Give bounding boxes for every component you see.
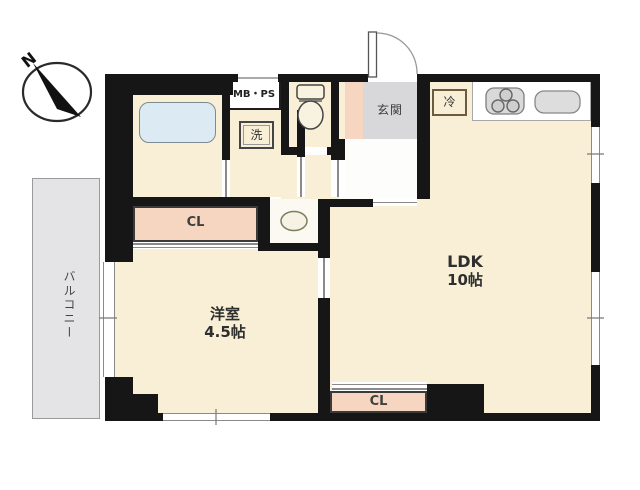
wall xyxy=(258,243,318,251)
ldk-label: LDK 10帖 xyxy=(410,253,520,290)
fridge-label: 冷 xyxy=(432,95,467,109)
wall xyxy=(318,199,330,258)
wall xyxy=(318,298,330,413)
washer-label: 洗 xyxy=(239,128,274,142)
room-vanity-alcove xyxy=(270,199,318,243)
bathtub-icon xyxy=(139,102,216,143)
entry-door-icon xyxy=(369,32,418,77)
window-balcony xyxy=(103,262,115,377)
wall xyxy=(427,384,484,417)
kitchen-counter xyxy=(472,78,591,121)
window-south xyxy=(163,413,270,421)
wall xyxy=(591,74,600,127)
window-east-lower xyxy=(591,272,600,365)
entrance-hall xyxy=(339,139,417,199)
meter-box-label: MB・PS xyxy=(227,89,281,101)
window-east-upper xyxy=(591,127,600,183)
ldk-opening xyxy=(373,199,417,206)
entrance-step xyxy=(345,82,363,139)
ldk-name: LDK xyxy=(410,253,520,272)
ldk-size: 10帖 xyxy=(410,272,520,290)
closet-bottom-label: CL xyxy=(330,394,427,409)
wall xyxy=(105,413,163,421)
western-room-door xyxy=(318,258,330,298)
room-toilet xyxy=(289,82,331,147)
wall xyxy=(297,110,305,157)
wall xyxy=(417,74,430,199)
wall xyxy=(222,82,230,160)
washroom-door xyxy=(297,157,305,197)
closet-bottom-door xyxy=(332,382,427,391)
western-name: 洋室 xyxy=(170,306,280,324)
compass-icon: N xyxy=(18,48,91,121)
wall xyxy=(591,365,600,421)
bath-door xyxy=(222,160,230,197)
wall xyxy=(338,139,345,161)
wall xyxy=(278,74,368,82)
entrance-label: 玄関 xyxy=(363,103,417,117)
western-room-label: 洋室 4.5帖 xyxy=(170,306,280,341)
hall-door xyxy=(331,160,345,197)
balcony-label: バルコニー xyxy=(56,250,76,360)
north-label: N xyxy=(18,48,40,71)
wall xyxy=(281,82,289,149)
wall xyxy=(258,197,270,245)
floorplan-canvas: バルコニー CL CL 冷 洗 MB・PS xyxy=(0,0,640,490)
closet-top-door xyxy=(133,242,258,249)
closet-top-label: CL xyxy=(133,215,258,230)
meter-niche-front xyxy=(238,74,278,82)
room-corridor xyxy=(281,155,331,199)
wall xyxy=(417,74,600,82)
wall xyxy=(591,183,600,272)
western-size: 4.5帖 xyxy=(170,324,280,342)
wall xyxy=(105,197,270,206)
wall xyxy=(105,74,133,262)
